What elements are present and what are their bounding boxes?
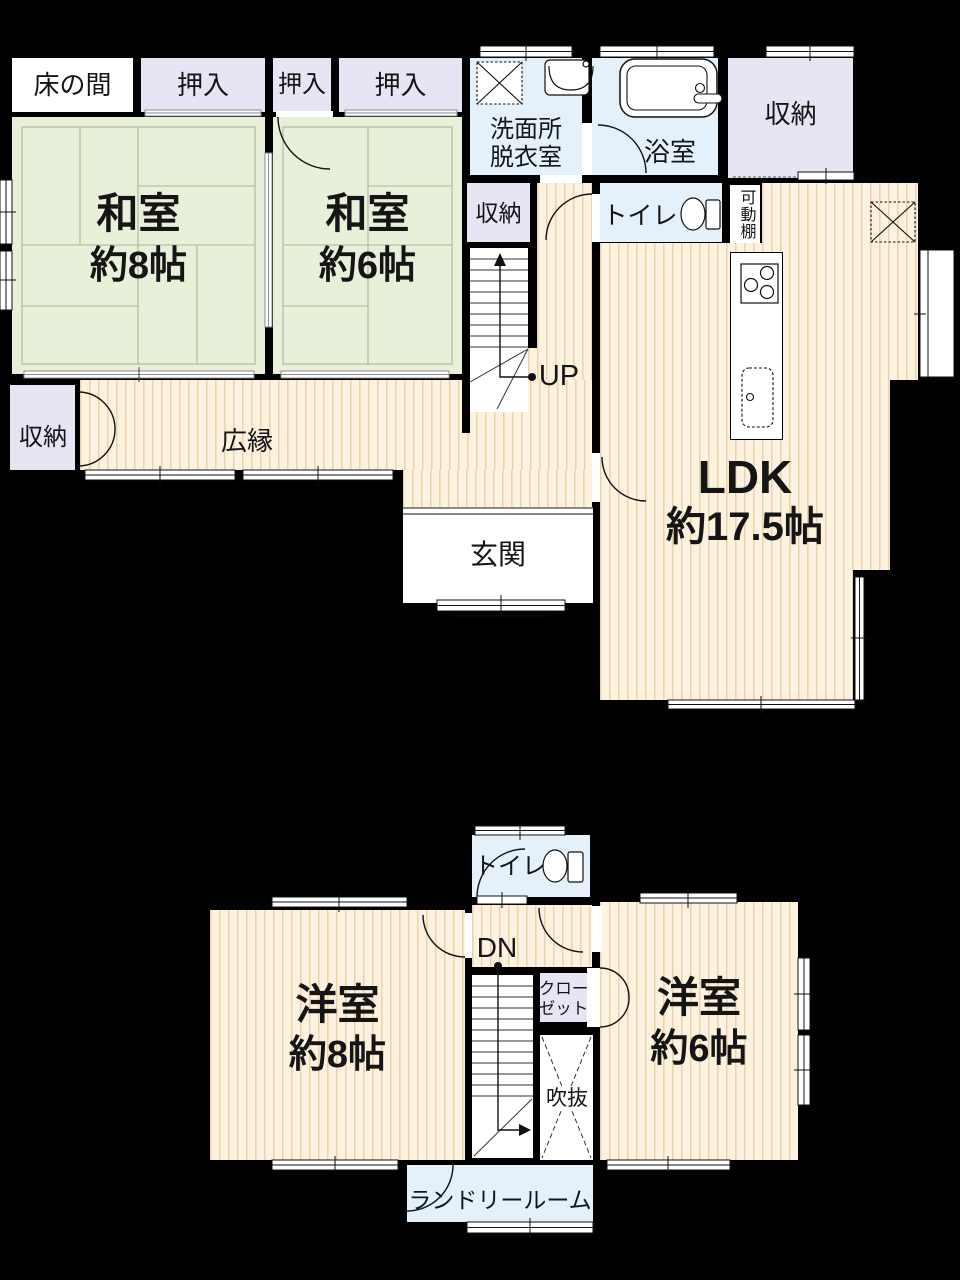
label-washitsu6-name: 和室 — [273, 190, 462, 238]
label-yoshitsu8-name: 洋室 — [210, 982, 465, 1028]
stairs-1f — [470, 248, 528, 412]
kitchen-counter — [730, 252, 783, 440]
label-stairs-up: UP — [536, 361, 582, 391]
label-closet-1: クロー — [540, 979, 587, 999]
label-oshiire-1: 押入 — [141, 70, 265, 100]
floor-plan: 床の間 押入 押入 押入 和室 約8帖 和室 約6帖 洗面所 脱衣室 浴室 収納… — [0, 0, 960, 1280]
label-storage-left: 収納 — [12, 424, 74, 452]
label-washitsu8-size: 約8帖 — [12, 244, 265, 288]
label-tokonoma: 床の間 — [12, 70, 133, 100]
label-ldk-size: 約17.5帖 — [620, 505, 870, 549]
label-washitsu8-name: 和室 — [12, 190, 265, 238]
label-washitsu6-size: 約6帖 — [273, 244, 462, 288]
label-toilet-2f: トイレ — [472, 853, 548, 881]
label-bathroom: 浴室 — [620, 138, 720, 166]
label-senmenjo-2: 脱衣室 — [470, 145, 582, 171]
hall-1f — [537, 183, 592, 348]
label-ldk-name: LDK — [640, 452, 850, 502]
label-laundry: ランドリールーム — [407, 1186, 593, 1214]
wall-stairs-left — [462, 243, 470, 433]
label-oshiire-2: 押入 — [273, 70, 331, 100]
window-bay — [914, 250, 954, 377]
hall-genkan — [403, 470, 592, 507]
label-yoshitsu6-name: 洋室 — [600, 975, 798, 1021]
label-yoshitsu6-size: 約6帖 — [600, 1028, 798, 1070]
label-stairs-down: DN — [474, 934, 520, 962]
wall-stairs-right — [528, 243, 537, 348]
label-genkan: 玄関 — [403, 539, 593, 571]
label-oshiire-3: 押入 — [339, 70, 462, 100]
window — [851, 577, 868, 700]
label-fukinuke: 吹抜 — [543, 1086, 591, 1110]
label-toilet-1f: トイレ — [596, 202, 684, 230]
room-ldk-top — [762, 183, 918, 243]
label-closet-2: ゼット — [540, 999, 587, 1019]
label-kadodana: 可動棚 — [732, 186, 759, 242]
label-storage-hall: 収納 — [467, 200, 530, 226]
label-storage-top: 収納 — [728, 99, 853, 129]
room-ldk-lower — [600, 570, 853, 700]
label-senmenjo-1: 洗面所 — [470, 117, 582, 143]
stairs-2f — [472, 975, 533, 1158]
label-yoshitsu8-size: 約8帖 — [210, 1034, 465, 1076]
label-hiroen: 広縁 — [197, 426, 297, 456]
